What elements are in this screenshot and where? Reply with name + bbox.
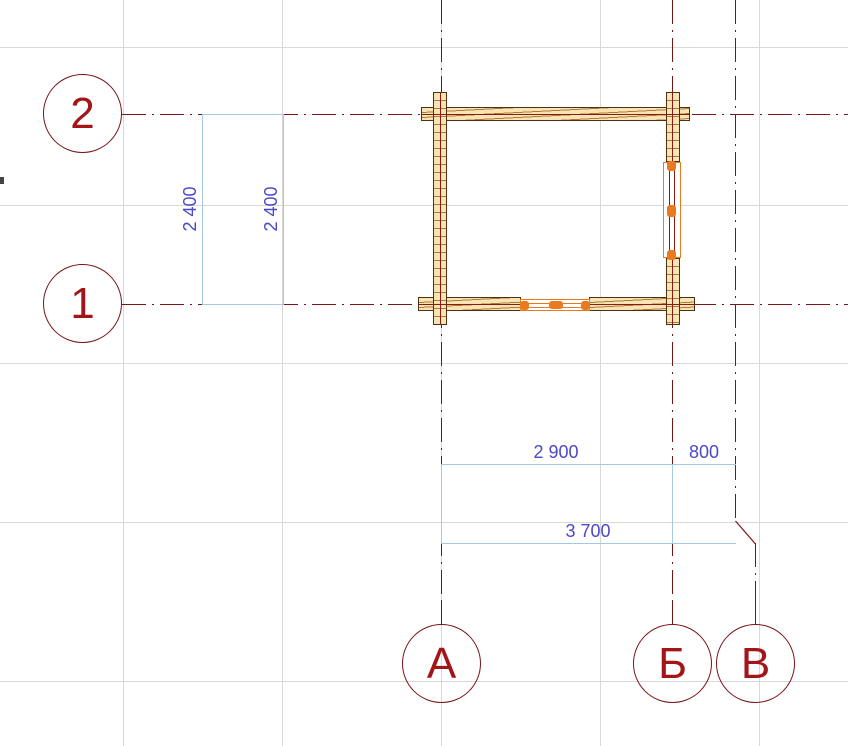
wall-centerline (672, 259, 673, 324)
axis-bubble-b-label: Б (658, 642, 687, 686)
dimension-text-2900[interactable]: 2 900 (506, 441, 606, 463)
axis-bubble-2[interactable]: 2 (43, 74, 122, 153)
axis-bubble-a-label: А (427, 642, 456, 686)
dimension-line-3700[interactable] (441, 543, 736, 544)
wall-centerline (440, 93, 441, 324)
window-hotspot-marker[interactable] (667, 205, 676, 217)
window-hotspot-marker[interactable] (667, 161, 676, 171)
wall-centerline (419, 304, 520, 305)
axis-bubble-2-label: 2 (70, 92, 94, 136)
dimension-line-2400-right[interactable] (283, 114, 284, 305)
axis-bubble-b[interactable]: Б (633, 624, 712, 703)
cad-canvas[interactable]: 2 400 2 400 2 900 800 3 700 2 1 (0, 0, 848, 746)
dimension-text-3700[interactable]: 3 700 (538, 520, 638, 542)
dimension-text-2400-a[interactable]: 2 400 (179, 159, 201, 259)
grid-line-horizontal (0, 205, 848, 206)
log-wall-right-lower[interactable] (666, 258, 680, 325)
grid-line-horizontal (0, 522, 848, 523)
dimension-witness-top[interactable] (202, 114, 284, 115)
dimension-text-2400-b[interactable]: 2 400 (260, 159, 282, 259)
dimension-text-800[interactable]: 800 (654, 441, 754, 463)
log-wall-right-upper[interactable] (666, 92, 680, 162)
door-opening[interactable] (520, 299, 590, 311)
grid-line-horizontal (0, 47, 848, 48)
door-hotspot-marker[interactable] (520, 301, 529, 310)
axis-bubble-a[interactable]: А (402, 624, 481, 703)
axis-line-v-stub (755, 601, 756, 625)
wall-centerline (422, 114, 689, 115)
grid-line-vertical (123, 0, 124, 746)
axis-bubble-v-label: В (741, 642, 770, 686)
door-hotspot-marker[interactable] (549, 301, 563, 309)
axis-line-v-lower[interactable] (755, 543, 756, 601)
dimension-witness-b[interactable] (672, 464, 673, 544)
grid-line-horizontal (0, 363, 848, 364)
window-opening[interactable] (663, 162, 681, 258)
axis-bubble-v[interactable]: В (716, 624, 795, 703)
dimension-line-2900-800[interactable] (441, 464, 736, 465)
dimension-witness-bottom[interactable] (202, 304, 284, 305)
dimension-line-2400-left[interactable] (202, 114, 203, 305)
grid-line-vertical (282, 0, 283, 746)
window-hotspot-marker[interactable] (667, 250, 676, 260)
dimension-witness-a[interactable] (441, 464, 442, 544)
axis-line-v-jog (734, 520, 757, 545)
axis-line-b-stub (672, 601, 673, 625)
door-hotspot-marker[interactable] (581, 301, 590, 310)
axis-bubble-1[interactable]: 1 (43, 264, 122, 343)
axis-line-a-stub (441, 601, 442, 625)
canvas-edge-artifact (0, 177, 4, 184)
wall-centerline (672, 93, 673, 161)
wall-centerline (590, 304, 694, 305)
axis-bubble-1-label: 1 (70, 282, 94, 326)
